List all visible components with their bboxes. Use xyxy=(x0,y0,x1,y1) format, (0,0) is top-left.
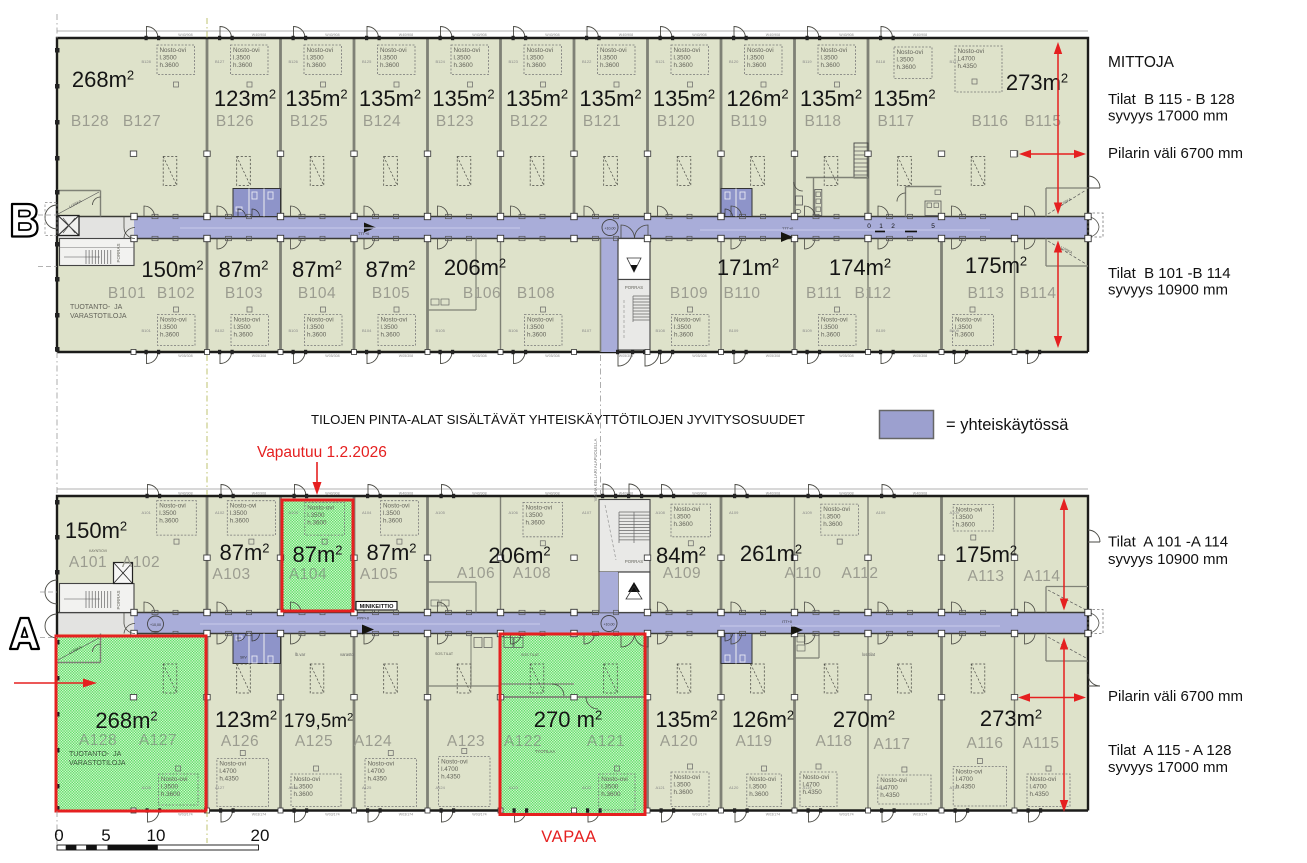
svg-text:Nosto-ovi: Nosto-ovi xyxy=(956,506,983,513)
svg-text:B127: B127 xyxy=(215,59,225,64)
svg-text:20: 20 xyxy=(251,826,270,845)
svg-text:L4700: L4700 xyxy=(958,56,976,63)
svg-text:SOS.TILAT: SOS.TILAT xyxy=(521,653,540,657)
svg-text:VARASTOTILOJA: VARASTOTILOJA xyxy=(69,760,126,767)
svg-text:273m2: 273m2 xyxy=(980,706,1042,731)
svg-text:h.3600: h.3600 xyxy=(821,62,841,69)
svg-text:Nosto-ovi: Nosto-ovi xyxy=(821,317,848,324)
svg-text:B114: B114 xyxy=(1019,285,1056,302)
svg-text:B107: B107 xyxy=(582,328,592,333)
svg-text:Tilat B 101 -B 114: Tilat B 101 -B 114 xyxy=(1108,265,1231,282)
svg-text:l.4700: l.4700 xyxy=(1030,784,1048,791)
svg-text:l.3500: l.3500 xyxy=(454,55,472,62)
svg-text:B125: B125 xyxy=(362,59,372,64)
svg-text:Nosto-ovi: Nosto-ovi xyxy=(956,769,983,776)
svg-text:los.tilat: los.tilat xyxy=(862,652,876,657)
svg-text:A126: A126 xyxy=(221,733,259,750)
svg-text:W03/174: W03/174 xyxy=(839,813,853,817)
svg-text:A101: A101 xyxy=(69,554,107,571)
svg-text:ITT+0: ITT+0 xyxy=(782,620,792,624)
svg-text:A109: A109 xyxy=(803,510,813,515)
svg-text:B101: B101 xyxy=(108,285,146,302)
svg-text:A103: A103 xyxy=(212,566,250,583)
svg-text:268m2: 268m2 xyxy=(72,67,134,92)
svg-text:B122: B122 xyxy=(510,113,548,130)
svg-text:B109: B109 xyxy=(729,328,739,333)
svg-text:B120: B120 xyxy=(729,59,739,64)
svg-text:l.3500: l.3500 xyxy=(230,510,248,517)
svg-text:135m2: 135m2 xyxy=(800,86,862,111)
svg-text:87m2: 87m2 xyxy=(219,540,269,565)
svg-text:PORRAS: PORRAS xyxy=(116,243,121,262)
svg-text:135m2: 135m2 xyxy=(285,86,347,111)
svg-text:135m2: 135m2 xyxy=(359,86,421,111)
svg-text:W03/174: W03/174 xyxy=(692,813,706,817)
svg-text:A105: A105 xyxy=(360,566,398,583)
svg-text:Nosto-ovi: Nosto-ovi xyxy=(955,317,982,324)
svg-text:W40/908: W40/908 xyxy=(325,33,339,37)
svg-text:Nosto-ovi: Nosto-ovi xyxy=(230,503,257,510)
svg-text:l.3500: l.3500 xyxy=(749,784,767,791)
svg-text:A124: A124 xyxy=(436,785,446,790)
svg-text:PORRAS: PORRAS xyxy=(625,559,643,564)
svg-text:B105: B105 xyxy=(436,328,446,333)
svg-text:Nosto-ovi: Nosto-ovi xyxy=(160,47,187,54)
svg-text:A117: A117 xyxy=(873,736,910,753)
svg-text:W05/308: W05/308 xyxy=(325,354,339,358)
svg-text:W03/174: W03/174 xyxy=(178,813,192,817)
svg-text:171m2: 171m2 xyxy=(717,255,779,280)
svg-text:Nosto-ovi: Nosto-ovi xyxy=(880,777,907,784)
svg-text:B119: B119 xyxy=(803,59,813,64)
svg-text:W05/308: W05/308 xyxy=(839,354,853,358)
svg-text:h.3600: h.3600 xyxy=(307,519,327,526)
svg-text:Nosto-ovi: Nosto-ovi xyxy=(674,506,701,513)
svg-text:B126: B126 xyxy=(216,113,254,130)
svg-text:l.3500: l.3500 xyxy=(674,782,692,789)
svg-text:syvyys 17000 mm: syvyys 17000 mm xyxy=(1108,759,1228,776)
svg-text:l.4700: l.4700 xyxy=(368,768,386,775)
svg-text:W40/908: W40/908 xyxy=(913,492,927,496)
svg-text:A106: A106 xyxy=(457,565,495,582)
svg-text:A119: A119 xyxy=(735,733,772,750)
svg-text:Nosto-ovi: Nosto-ovi xyxy=(294,776,321,783)
svg-text:Nosto-ovi: Nosto-ovi xyxy=(803,774,830,781)
svg-text:W40/908: W40/908 xyxy=(766,492,780,496)
svg-text:A118: A118 xyxy=(815,733,852,750)
svg-text:MITTOJA: MITTOJA xyxy=(1108,54,1175,71)
svg-text:Nosto-ovi: Nosto-ovi xyxy=(381,317,408,324)
svg-text:A120: A120 xyxy=(729,785,739,790)
svg-text:W40/908: W40/908 xyxy=(766,33,780,37)
svg-text:A109: A109 xyxy=(950,510,960,515)
svg-text:A121: A121 xyxy=(587,733,625,750)
svg-text:MINIKEITTIO: MINIKEITTIO xyxy=(360,604,395,610)
svg-text:Nosto-ovi: Nosto-ovi xyxy=(527,317,554,324)
svg-text:135m2: 135m2 xyxy=(655,707,717,732)
svg-text:l.3500: l.3500 xyxy=(897,57,915,64)
svg-text:l.4700: l.4700 xyxy=(441,766,459,773)
svg-text:B111: B111 xyxy=(806,285,842,302)
svg-text:A126: A126 xyxy=(289,785,299,790)
svg-text:h.3600: h.3600 xyxy=(956,521,976,528)
svg-text:l.3500: l.3500 xyxy=(527,55,545,62)
svg-text:Nosto-ovi: Nosto-ovi xyxy=(958,48,985,55)
svg-text:h.3600: h.3600 xyxy=(160,332,180,339)
svg-text:l.4700: l.4700 xyxy=(219,768,237,775)
svg-text:B104: B104 xyxy=(298,285,336,302)
svg-text:Nosto-ovi: Nosto-ovi xyxy=(601,776,628,783)
svg-text:87m2: 87m2 xyxy=(292,257,342,282)
svg-text:VANHA KELLARI ALAPUOLELLA: VANHA KELLARI ALAPUOLELLA xyxy=(593,438,598,501)
svg-text:l.3500: l.3500 xyxy=(823,514,841,521)
svg-text:W40/908: W40/908 xyxy=(839,33,853,37)
svg-text:h.3600: h.3600 xyxy=(380,62,400,69)
svg-text:B127: B127 xyxy=(123,113,161,130)
svg-text:h.3600: h.3600 xyxy=(159,518,179,525)
svg-text:+10,00: +10,00 xyxy=(150,623,161,627)
svg-text:Nosto-ovi: Nosto-ovi xyxy=(600,47,627,54)
svg-text:W40/908: W40/908 xyxy=(692,492,706,496)
svg-text:A119: A119 xyxy=(803,785,813,790)
svg-text:l.3500: l.3500 xyxy=(747,55,765,62)
svg-text:Nosto-ovi: Nosto-ovi xyxy=(159,503,186,510)
svg-text:A103: A103 xyxy=(289,510,299,515)
svg-text:TUOTANTO- JA: TUOTANTO- JA xyxy=(70,304,123,311)
svg-text:SIIV: SIIV xyxy=(240,656,247,660)
svg-text:l.3500: l.3500 xyxy=(674,514,692,521)
svg-text:Nosto-ovi: Nosto-ovi xyxy=(823,506,850,513)
svg-text:B122: B122 xyxy=(582,59,592,64)
svg-text:Tilat A 101 -A 114: Tilat A 101 -A 114 xyxy=(1108,534,1228,551)
svg-text:B109: B109 xyxy=(803,328,813,333)
svg-text:h.3600: h.3600 xyxy=(233,62,253,69)
svg-text:B123: B123 xyxy=(436,113,474,130)
svg-text:W40/908: W40/908 xyxy=(619,33,633,37)
svg-text:B108: B108 xyxy=(517,285,555,302)
svg-text:W40/908: W40/908 xyxy=(839,492,853,496)
svg-text:B118: B118 xyxy=(804,113,841,130)
svg-text:A116: A116 xyxy=(966,735,1003,752)
svg-text:A108: A108 xyxy=(656,510,666,515)
svg-text:W40/908: W40/908 xyxy=(252,33,266,37)
svg-text:Vapautuu 1.2.2026: Vapautuu 1.2.2026 xyxy=(257,444,387,461)
svg-text:= yhteiskäytössä: = yhteiskäytössä xyxy=(946,416,1069,434)
svg-text:Nosto-ovi: Nosto-ovi xyxy=(821,47,848,54)
svg-text:W03/174: W03/174 xyxy=(252,813,266,817)
svg-text:Nosto-ovi: Nosto-ovi xyxy=(674,47,701,54)
svg-text:W40/908: W40/908 xyxy=(252,492,266,496)
svg-text:PORRAS: PORRAS xyxy=(116,590,121,609)
svg-text:B118: B118 xyxy=(876,59,886,64)
svg-text:A118: A118 xyxy=(876,785,886,790)
svg-text:A109: A109 xyxy=(729,510,739,515)
svg-text:A106: A106 xyxy=(509,510,519,515)
svg-text:A125: A125 xyxy=(295,733,333,750)
svg-text:B110: B110 xyxy=(723,285,760,302)
svg-text:l.3500: l.3500 xyxy=(601,784,619,791)
svg-text:Pilarin väli 6700 mm: Pilarin väli 6700 mm xyxy=(1108,688,1243,705)
svg-text:B109: B109 xyxy=(950,328,960,333)
svg-text:B128: B128 xyxy=(142,59,152,64)
svg-text:l.3500: l.3500 xyxy=(674,55,692,62)
svg-text:syvyys 17000 mm: syvyys 17000 mm xyxy=(1108,108,1228,125)
svg-text:l.3500: l.3500 xyxy=(233,55,251,62)
svg-text:A113: A113 xyxy=(967,568,1004,585)
svg-text:h.3600: h.3600 xyxy=(600,62,620,69)
svg-text:B103: B103 xyxy=(289,328,299,333)
svg-text:B102: B102 xyxy=(157,285,195,302)
svg-text:+10,00: +10,00 xyxy=(603,623,614,627)
svg-text:B123: B123 xyxy=(509,59,519,64)
svg-text:h.3600: h.3600 xyxy=(674,789,694,796)
svg-text:B120: B120 xyxy=(657,113,695,130)
svg-text:175m2: 175m2 xyxy=(965,253,1027,278)
svg-text:A127: A127 xyxy=(139,732,177,749)
svg-text:B104: B104 xyxy=(362,328,372,333)
svg-text:A110: A110 xyxy=(784,565,821,582)
svg-text:h.3600: h.3600 xyxy=(294,791,314,798)
svg-text:h.3600: h.3600 xyxy=(381,332,401,339)
svg-text:5: 5 xyxy=(931,223,935,230)
svg-text:W40/908: W40/908 xyxy=(545,492,559,496)
svg-text:B105: B105 xyxy=(372,285,410,302)
svg-text:A115: A115 xyxy=(1022,735,1059,752)
svg-text:B113: B113 xyxy=(967,285,1004,302)
svg-text:A105: A105 xyxy=(436,510,446,515)
svg-text:l.3500: l.3500 xyxy=(526,512,544,519)
svg-text:h.4350: h.4350 xyxy=(880,792,900,799)
svg-text:W40/908: W40/908 xyxy=(178,33,192,37)
svg-text:W05/308: W05/308 xyxy=(692,354,706,358)
svg-text:h.3600: h.3600 xyxy=(383,518,403,525)
svg-text:l.3500: l.3500 xyxy=(159,510,177,517)
svg-text:126m2: 126m2 xyxy=(732,707,794,732)
svg-text:Nosto-ovi: Nosto-ovi xyxy=(1030,776,1057,783)
svg-text:A117: A117 xyxy=(950,785,960,790)
svg-text:0: 0 xyxy=(54,826,63,845)
svg-text:1: 1 xyxy=(879,223,883,230)
svg-text:PPP+0: PPP+0 xyxy=(357,617,369,621)
svg-text:h.3600: h.3600 xyxy=(307,62,327,69)
svg-text:Nosto-ovi: Nosto-ovi xyxy=(383,503,410,510)
svg-text:Tilat A 115 - A 128: Tilat A 115 - A 128 xyxy=(1108,742,1231,759)
svg-text:174m2: 174m2 xyxy=(829,255,891,280)
svg-text:h.4350: h.4350 xyxy=(441,774,461,781)
svg-text:Nosto-ovi: Nosto-ovi xyxy=(526,504,553,511)
svg-text:135m2: 135m2 xyxy=(579,86,641,111)
svg-text:B103: B103 xyxy=(225,285,263,302)
svg-text:Nosto-ovi: Nosto-ovi xyxy=(234,317,261,324)
svg-text:A102: A102 xyxy=(122,554,160,571)
svg-text:W40/908: W40/908 xyxy=(399,492,413,496)
svg-text:5: 5 xyxy=(101,826,110,845)
svg-text:268m2: 268m2 xyxy=(95,708,157,733)
svg-text:h.3600: h.3600 xyxy=(674,332,694,339)
svg-text:Tilat B 115 - B 128: Tilat B 115 - B 128 xyxy=(1108,91,1235,108)
svg-text:h.3600: h.3600 xyxy=(161,791,181,798)
svg-text:A108: A108 xyxy=(513,565,551,582)
svg-text:B117: B117 xyxy=(877,113,914,130)
svg-text:W05/308: W05/308 xyxy=(766,354,780,358)
svg-text:W40/908: W40/908 xyxy=(692,33,706,37)
svg-text:B117: B117 xyxy=(950,59,960,64)
svg-text:l.3500: l.3500 xyxy=(380,55,398,62)
svg-text:h.4350: h.4350 xyxy=(958,63,978,70)
svg-text:h.4350: h.4350 xyxy=(956,784,976,791)
svg-text:syvyys 10900 mm: syvyys 10900 mm xyxy=(1108,551,1228,568)
svg-text:VARASTOTILOJA: VARASTOTILOJA xyxy=(70,313,127,320)
svg-text:h.3600: h.3600 xyxy=(674,521,694,528)
svg-text:VAPAA: VAPAA xyxy=(541,828,597,846)
svg-text:Nosto-ovi: Nosto-ovi xyxy=(307,504,334,511)
svg-text:W40/908: W40/908 xyxy=(913,33,927,37)
svg-text:A104: A104 xyxy=(289,566,327,583)
svg-text:h.3600: h.3600 xyxy=(601,791,621,798)
svg-text:B124: B124 xyxy=(363,113,401,130)
svg-text:l.3500: l.3500 xyxy=(160,324,178,331)
svg-text:W05/308: W05/308 xyxy=(913,354,927,358)
svg-text:179,5m2: 179,5m2 xyxy=(284,711,354,732)
svg-text:h.3600: h.3600 xyxy=(454,62,474,69)
svg-text:A104: A104 xyxy=(362,510,372,515)
svg-text:l.4700: l.4700 xyxy=(956,776,974,783)
svg-text:150m2: 150m2 xyxy=(141,257,203,282)
svg-text:Nosto-ovi: Nosto-ovi xyxy=(307,317,334,324)
svg-text:A122: A122 xyxy=(504,733,542,750)
svg-text:B109: B109 xyxy=(670,285,708,302)
svg-text:h.3600: h.3600 xyxy=(527,62,547,69)
svg-text:h.3600: h.3600 xyxy=(234,332,254,339)
svg-text:h.3600: h.3600 xyxy=(307,332,327,339)
svg-text:A109: A109 xyxy=(876,510,886,515)
svg-text:W40/908: W40/908 xyxy=(472,33,486,37)
svg-text:87m2: 87m2 xyxy=(218,257,268,282)
svg-text:h.3600: h.3600 xyxy=(749,791,769,798)
svg-text:W03/174: W03/174 xyxy=(472,813,486,817)
svg-text:B121: B121 xyxy=(583,113,621,130)
svg-text:B112: B112 xyxy=(854,285,891,302)
svg-text:126m2: 126m2 xyxy=(726,86,788,111)
svg-text:W03/174: W03/174 xyxy=(325,813,339,817)
svg-text:l.3500: l.3500 xyxy=(307,512,325,519)
svg-text:261m2: 261m2 xyxy=(740,541,802,566)
svg-text:Nosto-ovi: Nosto-ovi xyxy=(454,47,481,54)
svg-text:B108: B108 xyxy=(656,328,666,333)
svg-text:W05/308: W05/308 xyxy=(545,354,559,358)
svg-text:Nosto-ovi: Nosto-ovi xyxy=(674,317,701,324)
svg-text:lb.var: lb.var xyxy=(295,652,306,657)
svg-text:h.3600: h.3600 xyxy=(674,62,694,69)
svg-text:B115: B115 xyxy=(1024,113,1061,130)
svg-text:h.3600: h.3600 xyxy=(230,518,250,525)
svg-text:A127: A127 xyxy=(215,785,225,790)
svg-text:A128: A128 xyxy=(79,732,117,749)
svg-text:87m2: 87m2 xyxy=(365,257,415,282)
svg-text:B116: B116 xyxy=(971,113,1008,130)
svg-text:varasto: varasto xyxy=(340,652,354,657)
svg-text:A123: A123 xyxy=(447,733,485,750)
svg-text:123m2: 123m2 xyxy=(214,86,276,111)
svg-text:A102: A102 xyxy=(215,510,225,515)
svg-text:h.3600: h.3600 xyxy=(527,332,547,339)
svg-text:2: 2 xyxy=(891,223,895,230)
svg-text:Nosto-ovi: Nosto-ovi xyxy=(674,774,701,781)
svg-text:h.4350: h.4350 xyxy=(1030,791,1050,798)
svg-text:B126: B126 xyxy=(289,59,299,64)
svg-text:l.3500: l.3500 xyxy=(160,55,178,62)
svg-text:W05/308: W05/308 xyxy=(472,354,486,358)
svg-text:h.4350: h.4350 xyxy=(219,776,239,783)
svg-text:Nosto-ovi: Nosto-ovi xyxy=(161,776,188,783)
svg-text:l.3500: l.3500 xyxy=(527,324,545,331)
svg-text:W03/174: W03/174 xyxy=(766,813,780,817)
svg-text:A109: A109 xyxy=(663,565,701,582)
svg-text:135m2: 135m2 xyxy=(506,86,568,111)
svg-text:135m2: 135m2 xyxy=(873,86,935,111)
svg-text:Nosto-ovi: Nosto-ovi xyxy=(368,761,395,768)
svg-text:Pilarin väli 6700 mm: Pilarin väli 6700 mm xyxy=(1108,145,1243,162)
svg-text:Nosto-ovi: Nosto-ovi xyxy=(160,317,187,324)
svg-text:B106: B106 xyxy=(463,285,501,302)
svg-text:A121: A121 xyxy=(656,785,666,790)
svg-text:l.3500: l.3500 xyxy=(234,324,252,331)
svg-text:A101: A101 xyxy=(142,510,152,515)
svg-text:TILOJEN PINTA-ALAT SISÄLTÄVÄT: TILOJEN PINTA-ALAT SISÄLTÄVÄT YHTEISKÄYT… xyxy=(311,412,805,427)
svg-text:A112: A112 xyxy=(841,565,878,582)
svg-text:A124: A124 xyxy=(354,733,392,750)
svg-text:l.3500: l.3500 xyxy=(674,324,692,331)
svg-text:W03/174: W03/174 xyxy=(913,813,927,817)
svg-text:B102: B102 xyxy=(215,328,225,333)
svg-text:Nosto-ovi: Nosto-ovi xyxy=(233,47,260,54)
svg-text:W03/174: W03/174 xyxy=(399,813,413,817)
svg-text:175m2: 175m2 xyxy=(955,542,1017,567)
svg-text:l.3500: l.3500 xyxy=(383,510,401,517)
svg-text:W40/908: W40/908 xyxy=(545,33,559,37)
svg-text:135m2: 135m2 xyxy=(432,86,494,111)
svg-text:l.3500: l.3500 xyxy=(600,55,618,62)
svg-text:B109: B109 xyxy=(876,328,886,333)
svg-text:A122: A122 xyxy=(582,785,592,790)
svg-text:PORRAS: PORRAS xyxy=(625,285,643,290)
svg-text:h.3600: h.3600 xyxy=(526,519,546,526)
svg-text:KAYNTIOVI: KAYNTIOVI xyxy=(89,549,107,553)
svg-text:W05/308: W05/308 xyxy=(399,354,413,358)
svg-text:l.3500: l.3500 xyxy=(307,324,325,331)
svg-text:B121: B121 xyxy=(656,59,666,64)
svg-text:SOS.TILAT: SOS.TILAT xyxy=(435,652,454,656)
svg-text:135m2: 135m2 xyxy=(653,86,715,111)
svg-text:l.3500: l.3500 xyxy=(307,55,325,62)
svg-text:h.3600: h.3600 xyxy=(897,64,917,71)
svg-text:TTT+0: TTT+0 xyxy=(358,232,369,236)
svg-text:B125: B125 xyxy=(290,113,328,130)
svg-text:A107: A107 xyxy=(582,510,592,515)
svg-text:h.4350: h.4350 xyxy=(368,776,388,783)
svg-text:Nosto-ovi: Nosto-ovi xyxy=(747,47,774,54)
svg-text:A128: A128 xyxy=(142,785,152,790)
svg-text:Nosto-ovi: Nosto-ovi xyxy=(897,49,924,56)
svg-text:l.3500: l.3500 xyxy=(821,55,839,62)
svg-text:273m2: 273m2 xyxy=(1006,70,1068,95)
svg-text:87m2: 87m2 xyxy=(366,540,416,565)
svg-text:h.3600: h.3600 xyxy=(747,62,767,69)
svg-text:270m2: 270m2 xyxy=(833,707,895,732)
svg-text:Nosto-ovi: Nosto-ovi xyxy=(749,776,776,783)
svg-text:270 m2: 270 m2 xyxy=(534,707,602,732)
svg-text:A123: A123 xyxy=(509,785,519,790)
